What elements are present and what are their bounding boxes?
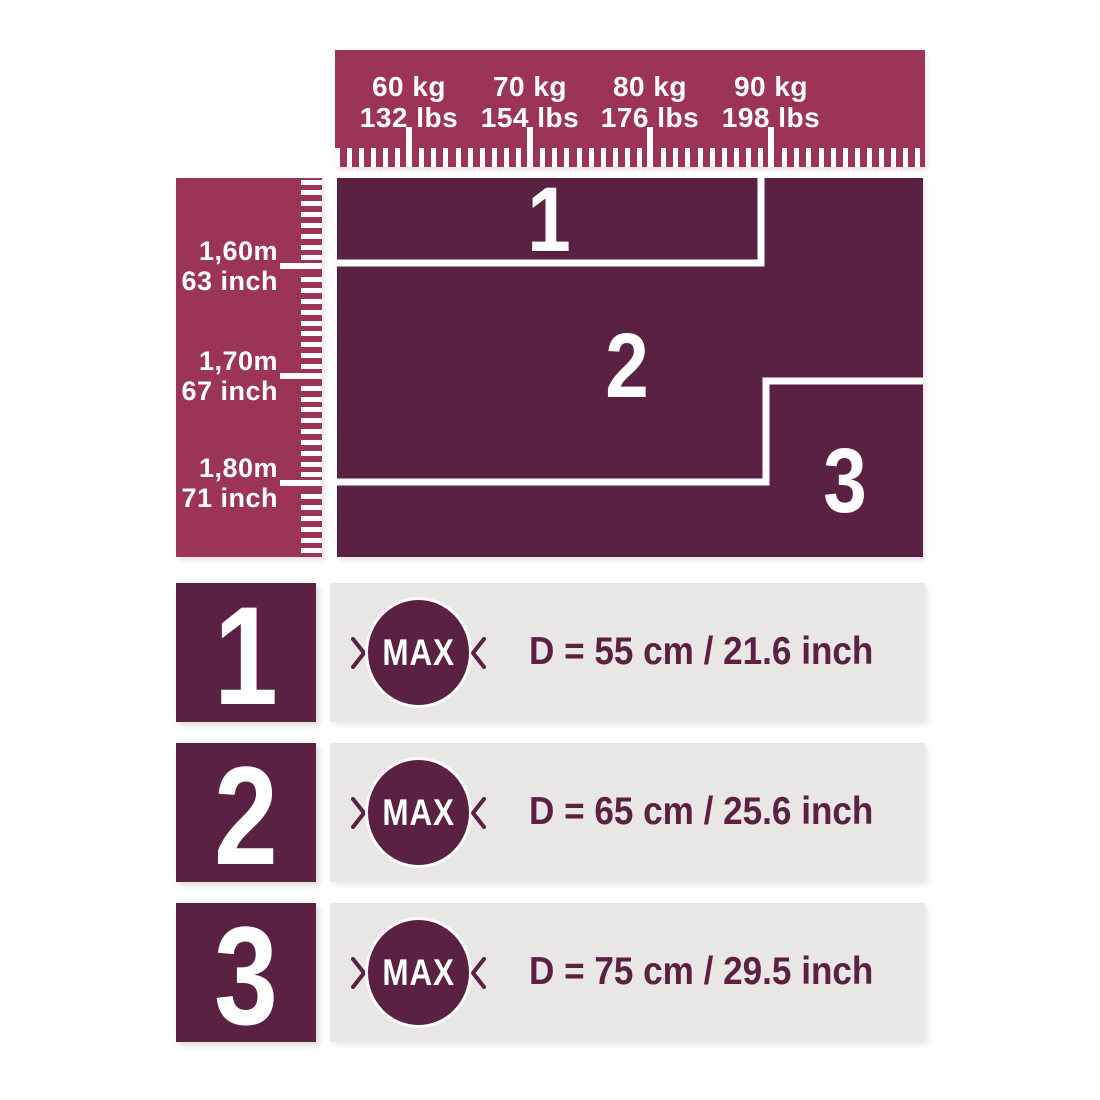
diameter-value: D = 75 cm / 29.5 inch [529, 950, 873, 994]
ruler-tick [527, 127, 533, 167]
ruler-tick [301, 397, 322, 402]
ruler-tick [746, 148, 751, 167]
ruler-tick [301, 516, 322, 521]
arrow-left-icon [471, 637, 486, 669]
height-inch: 71 inch [148, 483, 278, 513]
ruler-tick [301, 548, 322, 553]
zone-3-label: 3 [823, 435, 866, 527]
ruler-tick [301, 451, 322, 456]
weight-tick-label: 90 kg 198 lbs [691, 71, 851, 133]
ruler-tick [613, 148, 618, 167]
diameter-value: D = 65 cm / 25.6 inch [529, 790, 873, 834]
ruler-tick [673, 148, 678, 167]
ruler-tick [710, 148, 715, 167]
size-zone-chart: 1 2 3 [337, 178, 923, 557]
ruler-tick [480, 148, 485, 167]
height-m: 1,60m [148, 236, 278, 266]
ruler-tick [301, 234, 322, 239]
ruler-tick [625, 148, 630, 167]
ruler-tick [782, 148, 787, 167]
ruler-tick [301, 494, 322, 499]
arrow-left-icon [471, 797, 486, 829]
max-diameter-badge: MAX [368, 760, 469, 865]
arrow-left-icon [471, 957, 486, 989]
ruler-tick [280, 480, 322, 486]
ruler-tick [661, 148, 666, 167]
ruler-tick [806, 148, 811, 167]
ruler-tick [637, 148, 642, 167]
ruler-tick [301, 180, 322, 185]
ruler-tick [794, 148, 799, 167]
ruler-tick [301, 364, 322, 369]
ruler-tick [516, 148, 521, 167]
arrow-right-icon [351, 957, 366, 989]
ruler-tick [564, 148, 569, 167]
ruler-tick [891, 148, 896, 167]
ruler-tick [468, 148, 473, 167]
ruler-tick [301, 440, 322, 445]
ruler-tick [301, 527, 322, 532]
height-tick-label: 1,60m 63 inch [148, 236, 278, 296]
size-spec-bar: MAX D = 65 cm / 25.6 inch [330, 743, 925, 882]
ruler-tick [601, 148, 606, 167]
ruler-tick [843, 148, 848, 167]
max-label: MAX [382, 634, 454, 671]
ruler-tick [280, 263, 322, 269]
ruler-tick [552, 148, 557, 167]
ruler-tick [301, 288, 322, 293]
ruler-tick [301, 462, 322, 467]
arrow-right-icon [351, 797, 366, 829]
ruler-tick [698, 148, 703, 167]
ruler-tick [406, 127, 412, 167]
ruler-tick [540, 148, 545, 167]
ruler-tick [301, 223, 322, 228]
ruler-tick [431, 148, 436, 167]
ruler-tick [301, 299, 322, 304]
ruler-tick [768, 127, 774, 167]
ruler-tick [280, 373, 322, 379]
ruler-tick [371, 148, 376, 167]
ruler-tick [301, 353, 322, 358]
ball-size-guide: 60 kg 132 lbs 70 kg 154 lbs 80 kg 176 lb… [0, 0, 1100, 1100]
max-label: MAX [382, 794, 454, 831]
size-number: 1 [214, 586, 278, 726]
ruler-tick [301, 505, 322, 510]
ruler-tick [301, 342, 322, 347]
ruler-tick [647, 127, 653, 167]
ruler-tick [577, 148, 582, 167]
ruler-tick [903, 148, 908, 167]
diameter-value: D = 55 cm / 21.6 inch [529, 630, 873, 674]
height-inch: 67 inch [148, 376, 278, 406]
size-spec-bar: MAX D = 75 cm / 29.5 inch [330, 903, 925, 1042]
size-row-2: 2 MAX D = 65 cm / 25.6 inch [0, 743, 1100, 882]
ruler-tick [301, 190, 322, 195]
ruler-tick [335, 148, 340, 167]
ruler-tick [443, 148, 448, 167]
ruler-tick [831, 148, 836, 167]
arrow-right-icon [351, 637, 366, 669]
ruler-tick [301, 245, 322, 250]
size-row-3: 3 MAX D = 75 cm / 29.5 inch [0, 903, 1100, 1042]
size-row-1: 1 MAX D = 55 cm / 21.6 inch [0, 583, 1100, 722]
size-number-tile: 2 [176, 743, 316, 882]
zone-1-label: 1 [527, 174, 570, 266]
ruler-tick [359, 148, 364, 167]
ruler-tick [456, 148, 461, 167]
height-m: 1,80m [148, 453, 278, 483]
max-label: MAX [382, 954, 454, 991]
ruler-tick [395, 148, 400, 167]
ruler-tick [301, 472, 322, 477]
ruler-tick [301, 277, 322, 282]
ruler-tick [734, 148, 739, 167]
ruler-tick [301, 255, 322, 260]
size-number: 2 [214, 746, 278, 886]
weight-kg: 90 kg [691, 71, 851, 102]
ruler-tick [504, 148, 509, 167]
size-number-tile: 3 [176, 903, 316, 1042]
max-diameter-badge: MAX [368, 600, 469, 705]
ruler-tick [685, 148, 690, 167]
ruler-tick [383, 148, 388, 167]
ruler-tick [301, 418, 322, 423]
ruler-tick [347, 148, 352, 167]
ruler-tick [867, 148, 872, 167]
ruler-tick [722, 148, 727, 167]
size-number-tile: 1 [176, 583, 316, 722]
ruler-tick [419, 148, 424, 167]
weight-axis-ruler: 60 kg 132 lbs 70 kg 154 lbs 80 kg 176 lb… [335, 50, 925, 167]
max-diameter-badge: MAX [368, 920, 469, 1025]
height-tick-label: 1,70m 67 inch [148, 346, 278, 406]
ruler-tick [915, 148, 920, 167]
ruler-tick [819, 148, 824, 167]
ruler-tick [301, 429, 322, 434]
ruler-tick [301, 538, 322, 543]
size-number: 3 [214, 906, 278, 1046]
ruler-tick [758, 148, 763, 167]
ruler-tick [589, 148, 594, 167]
zone-2-label: 2 [605, 320, 648, 412]
height-inch: 63 inch [148, 266, 278, 296]
ruler-tick [301, 201, 322, 206]
ruler-tick [879, 148, 884, 167]
height-m: 1,70m [148, 346, 278, 376]
height-axis-ruler: 1,60m 63 inch 1,70m 67 inch 1,80m 71 inc… [176, 178, 322, 557]
ruler-tick [301, 331, 322, 336]
ruler-tick [492, 148, 497, 167]
ruler-tick [301, 310, 322, 315]
size-spec-bar: MAX D = 55 cm / 21.6 inch [330, 583, 925, 722]
ruler-tick [301, 407, 322, 412]
height-tick-label: 1,80m 71 inch [148, 453, 278, 513]
ruler-tick [855, 148, 860, 167]
ruler-tick [301, 321, 322, 326]
ruler-tick [301, 212, 322, 217]
ruler-tick [301, 386, 322, 391]
